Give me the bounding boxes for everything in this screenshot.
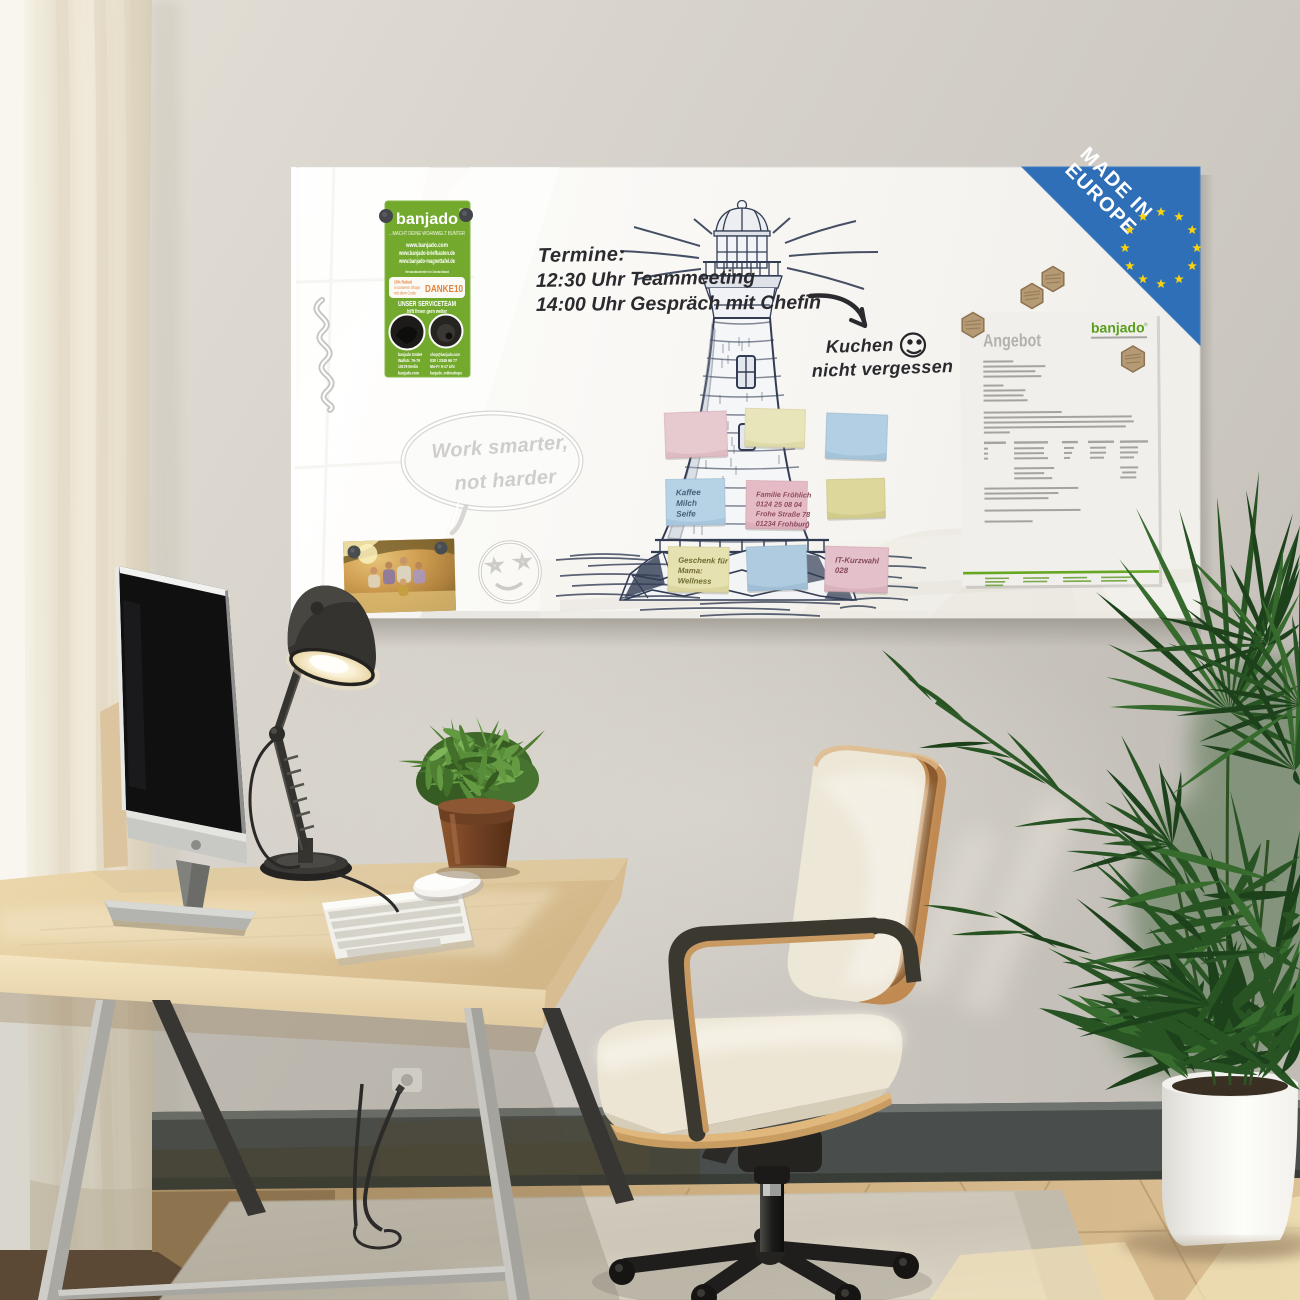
svg-text:01234 Frohburg: 01234 Frohburg [756,519,811,529]
svg-text:Seife: Seife [676,509,696,518]
svg-text:banjado.com: banjado.com [398,371,419,376]
svg-text:Mo-Fr 9-17 Uhr: Mo-Fr 9-17 Uhr [430,364,455,369]
svg-text:banjado GmbH: banjado GmbH [398,352,422,357]
svg-text:0124 25 08 04: 0124 25 08 04 [756,499,802,509]
svg-text:...MACHT DEINE WOHNWELT BUNTER: ...MACHT DEINE WOHNWELT BUNTER [389,231,465,237]
svg-text:12:30 Uhr Teammeeting: 12:30 Uhr Teammeeting [536,266,756,292]
svg-text:14:00 Uhr Gespräch mit Chefin: 14:00 Uhr Gespräch mit Chefin [536,292,821,316]
svg-text:Mama:: Mama: [678,566,703,575]
svg-text:Termine:: Termine: [538,243,626,267]
svg-text:www.banjado-magnettafel.de: www.banjado-magnettafel.de [398,259,455,265]
svg-text:UNSER SERVICETEAM: UNSER SERVICETEAM [398,299,456,308]
svg-text:Familie Fröhlich: Familie Fröhlich [756,490,812,500]
svg-text:banjado: banjado [1091,319,1145,335]
svg-text:Frohe Straße 78: Frohe Straße 78 [756,509,810,519]
svg-text:shop@banjado.com: shop@banjado.com [430,352,460,357]
svg-text:Kaffee: Kaffee [676,488,701,497]
svg-text:030 / 2345 66 77: 030 / 2345 66 77 [430,358,457,363]
svg-text:mit dem Code: mit dem Code [394,291,416,296]
svg-text:hilft Ihnen gern weiter: hilft Ihnen gern weiter [407,309,447,315]
svg-text:IT-Kurzwahl: IT-Kurzwahl [835,555,880,565]
svg-text:10179 Berlin: 10179 Berlin [398,364,418,369]
svg-text:www.banjado-briefkasten.de: www.banjado-briefkasten.de [398,251,455,257]
svg-text:Geschenk für: Geschenk für [678,556,729,566]
svg-text:Wallstr. 76-79: Wallstr. 76-79 [398,358,420,363]
svg-text:Milch: Milch [676,499,697,508]
svg-text:028: 028 [835,566,849,575]
svg-text:Kuchen: Kuchen [825,335,893,357]
svg-text:15% Rabatt: 15% Rabatt [394,280,412,285]
svg-text:Wellness: Wellness [678,576,712,586]
svg-text:in unserem Shops: in unserem Shops [394,285,421,290]
svg-text:DANKE10: DANKE10 [425,284,463,295]
svg-text:www.banjado.com: www.banjado.com [405,243,448,249]
svg-text:banjado: banjado [396,211,458,228]
svg-text:banjado_onlineshops: banjado_onlineshops [430,371,462,376]
svg-text:Versandkostenfrei in Deutschla: Versandkostenfrei in Deutschland [405,269,449,274]
svg-text:Angebot: Angebot [983,330,1041,351]
svg-text:®: ® [1144,321,1148,328]
